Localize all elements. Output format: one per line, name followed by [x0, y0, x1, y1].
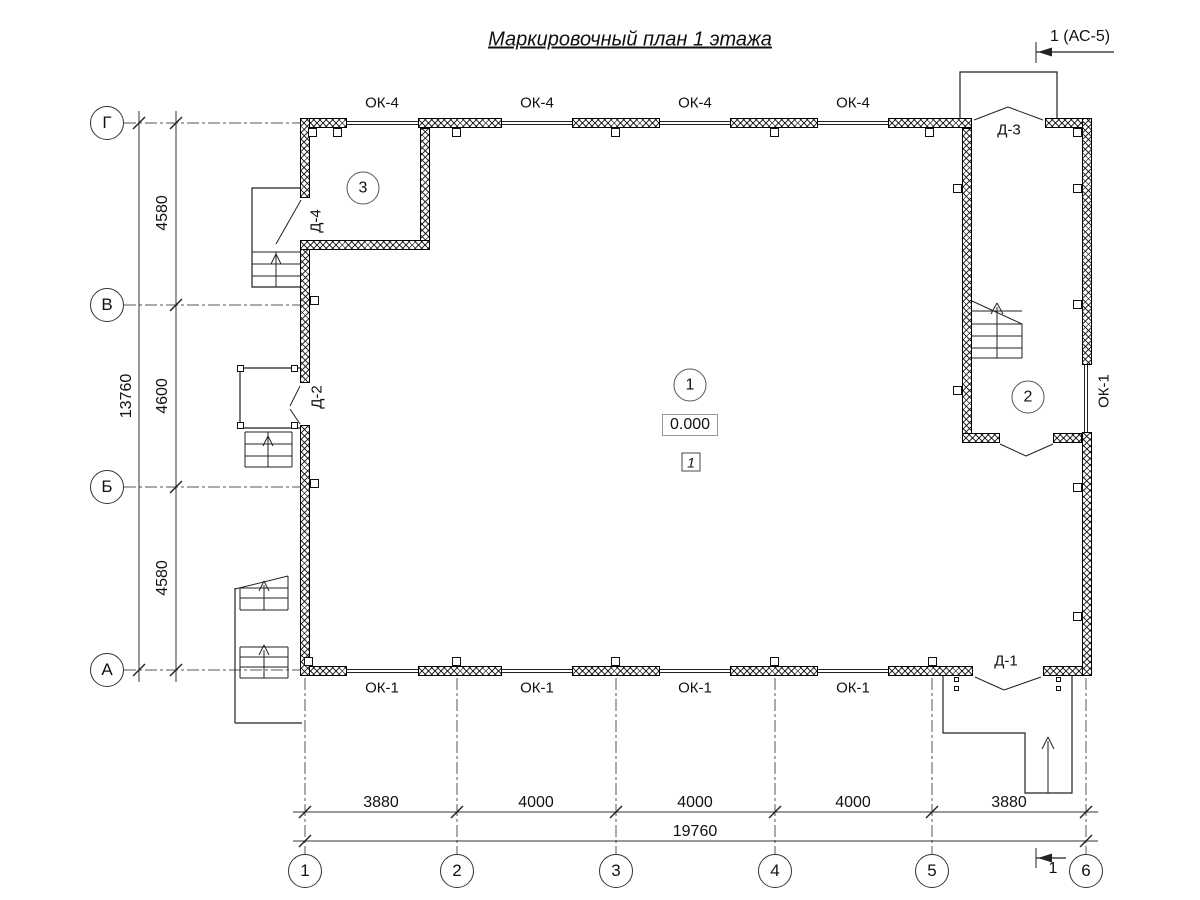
pilaster: [1073, 184, 1082, 193]
door-d4-swing: [276, 200, 301, 244]
pilaster: [770, 657, 779, 666]
pilaster: [310, 296, 319, 305]
wall-top-seg: [572, 118, 660, 128]
pilaster: [452, 657, 461, 666]
wall-room3-horizontal: [300, 240, 430, 250]
room-bubble-1: 1: [674, 369, 707, 402]
wall-left-seg: [300, 425, 310, 676]
door-d2-swing: [290, 386, 300, 424]
section-label-bottom: 1: [1049, 860, 1058, 878]
window-label-ok4: ОК-4: [365, 95, 399, 112]
porch-post: [237, 422, 244, 429]
door-d3-swing: [974, 107, 1043, 120]
floor-plan-canvas: Маркировочный план 1 этажа: [0, 0, 1200, 900]
stair-porch-mid-left: [245, 432, 292, 467]
door-label-d4: Д-4: [308, 209, 325, 233]
pilaster: [611, 128, 620, 137]
door-room2-swing: [1000, 444, 1053, 456]
pilaster: [308, 128, 317, 137]
window-label-ok1: ОК-1: [836, 680, 870, 697]
wall-bottom-seg: [888, 666, 973, 676]
elevation-mark: 0.000: [662, 414, 718, 436]
room-bubble-2: 2: [1012, 381, 1045, 414]
wall-top-seg: [418, 118, 502, 128]
axis-bubble-row-b: Б: [90, 470, 124, 504]
door-frame-mark: [1056, 677, 1061, 682]
pilaster: [1073, 128, 1082, 137]
porch-post: [291, 365, 298, 372]
axis-bubble-col-3: 3: [599, 854, 633, 888]
dim-bottom-total: 19760: [673, 823, 718, 841]
dim-bottom-2-3: 4000: [518, 794, 554, 812]
pilaster: [1073, 612, 1082, 621]
door-frame-mark: [1056, 686, 1061, 691]
axis-bubble-row-a: А: [90, 653, 124, 687]
axis-bubble-col-2: 2: [440, 854, 474, 888]
wall-bottom-seg: [730, 666, 818, 676]
pilaster: [452, 128, 461, 137]
dim-left-total: 13760: [118, 374, 136, 419]
dim-bottom-4-5: 4000: [835, 794, 871, 812]
wall-top-seg: [888, 118, 972, 128]
window-label-ok1: ОК-1: [365, 680, 399, 697]
wall-right-seg: [1082, 432, 1092, 676]
stair-porch-top-left: [252, 252, 300, 287]
axis-bubble-col-4: 4: [758, 854, 792, 888]
dim-left-v-b: 4600: [154, 378, 172, 414]
door-d1-swing: [975, 677, 1041, 690]
axis-bubble-col-5: 5: [915, 854, 949, 888]
section-label-top: 1 (АС-5): [1050, 28, 1110, 46]
porch-mid-left-outline: [240, 368, 300, 428]
pilaster: [953, 386, 962, 395]
wall-bottom-seg: [418, 666, 502, 676]
bottom-vestibule-outline: [943, 676, 1072, 793]
window-label-ok4: ОК-4: [678, 95, 712, 112]
window-glazing-lines: [347, 122, 1088, 673]
wall-room2-horizontal: [962, 433, 1000, 443]
dim-left-b-a: 4580: [154, 560, 172, 596]
pilaster: [333, 128, 342, 137]
door-frame-mark: [954, 686, 959, 691]
axis-bubble-col-1: 1: [288, 854, 322, 888]
window-label-ok4: ОК-4: [520, 95, 554, 112]
porch-post: [237, 365, 244, 372]
stair-bottom-left-external: [235, 576, 302, 723]
wall-right-seg: [1082, 118, 1092, 365]
entrance-ramp-arrow: [1042, 737, 1054, 793]
door-frame-mark: [954, 677, 959, 682]
pilaster: [925, 128, 934, 137]
drawing-title: Маркировочный план 1 этажа: [488, 29, 772, 52]
wall-room2-horizontal: [1053, 433, 1082, 443]
window-label-ok1: ОК-1: [520, 680, 554, 697]
top-vestibule-outline: [960, 72, 1057, 118]
window-label-ok1: ОК-1: [678, 680, 712, 697]
floor-type-mark: 1: [682, 453, 701, 472]
stair-room2: [972, 301, 1022, 358]
window-label-ok1-right: ОК-1: [1096, 374, 1113, 408]
wall-left-seg: [300, 242, 310, 383]
wall-room2-vertical: [962, 128, 972, 443]
pilaster: [304, 657, 313, 666]
axis-bubble-row-v: В: [90, 288, 124, 322]
door-label-d3: Д-3: [997, 122, 1021, 139]
axis-bubble-col-6: 6: [1069, 854, 1103, 888]
axis-bubble-row-g: Г: [90, 106, 124, 140]
pilaster: [953, 184, 962, 193]
door-label-d1: Д-1: [994, 653, 1018, 670]
room-bubble-3: 3: [347, 172, 380, 205]
pilaster: [928, 657, 937, 666]
dim-left-g-v: 4580: [154, 195, 172, 231]
wall-room3-vertical: [420, 128, 430, 250]
pilaster: [1073, 300, 1082, 309]
dim-bottom-1-2: 3880: [363, 794, 399, 812]
pilaster: [1073, 483, 1082, 492]
dim-bottom-3-4: 4000: [677, 794, 713, 812]
axis-centerlines: [124, 123, 1086, 854]
pilaster: [310, 479, 319, 488]
window-label-ok4: ОК-4: [836, 95, 870, 112]
wall-top-seg: [730, 118, 818, 128]
door-label-d2: Д-2: [309, 385, 326, 409]
pilaster: [770, 128, 779, 137]
porch-post: [291, 422, 298, 429]
wall-bottom-seg: [572, 666, 660, 676]
dim-bottom-5-6: 3880: [991, 794, 1027, 812]
pilaster: [611, 657, 620, 666]
